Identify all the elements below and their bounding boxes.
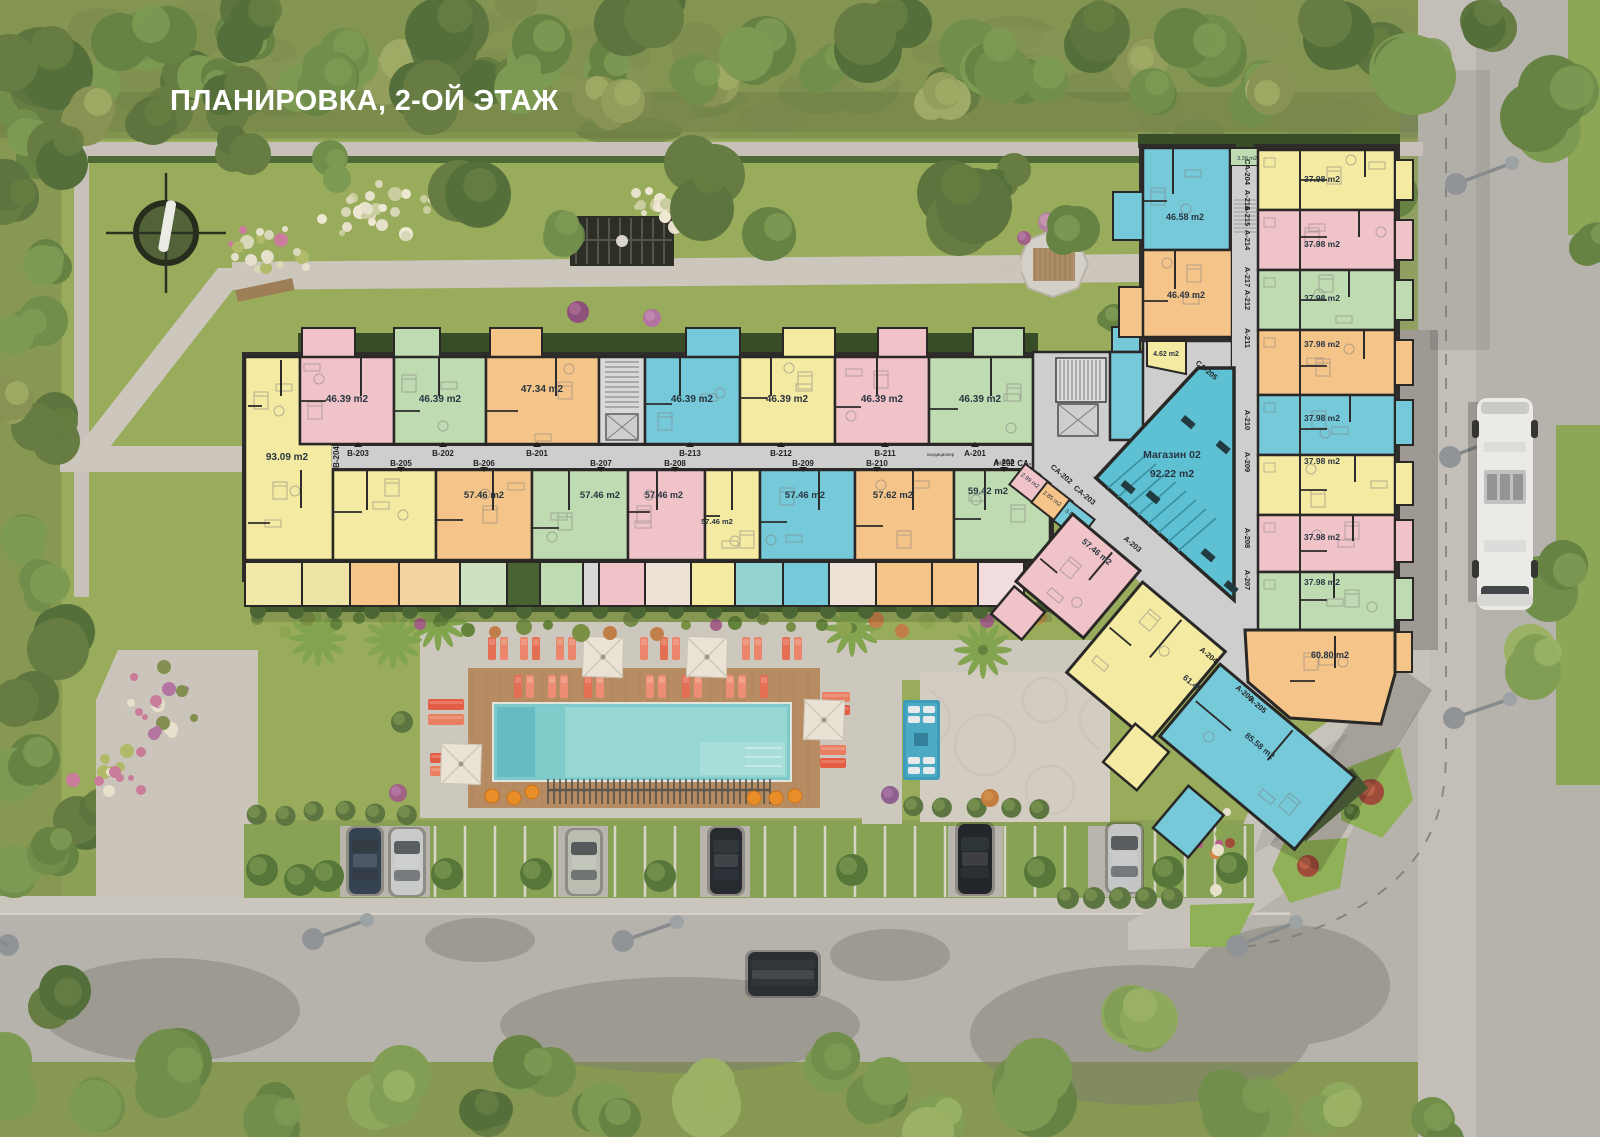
svg-text:ПЛАНИРОВКА, 2-ОЙ ЭТАЖ: ПЛАНИРОВКА, 2-ОЙ ЭТАЖ: [170, 83, 559, 117]
